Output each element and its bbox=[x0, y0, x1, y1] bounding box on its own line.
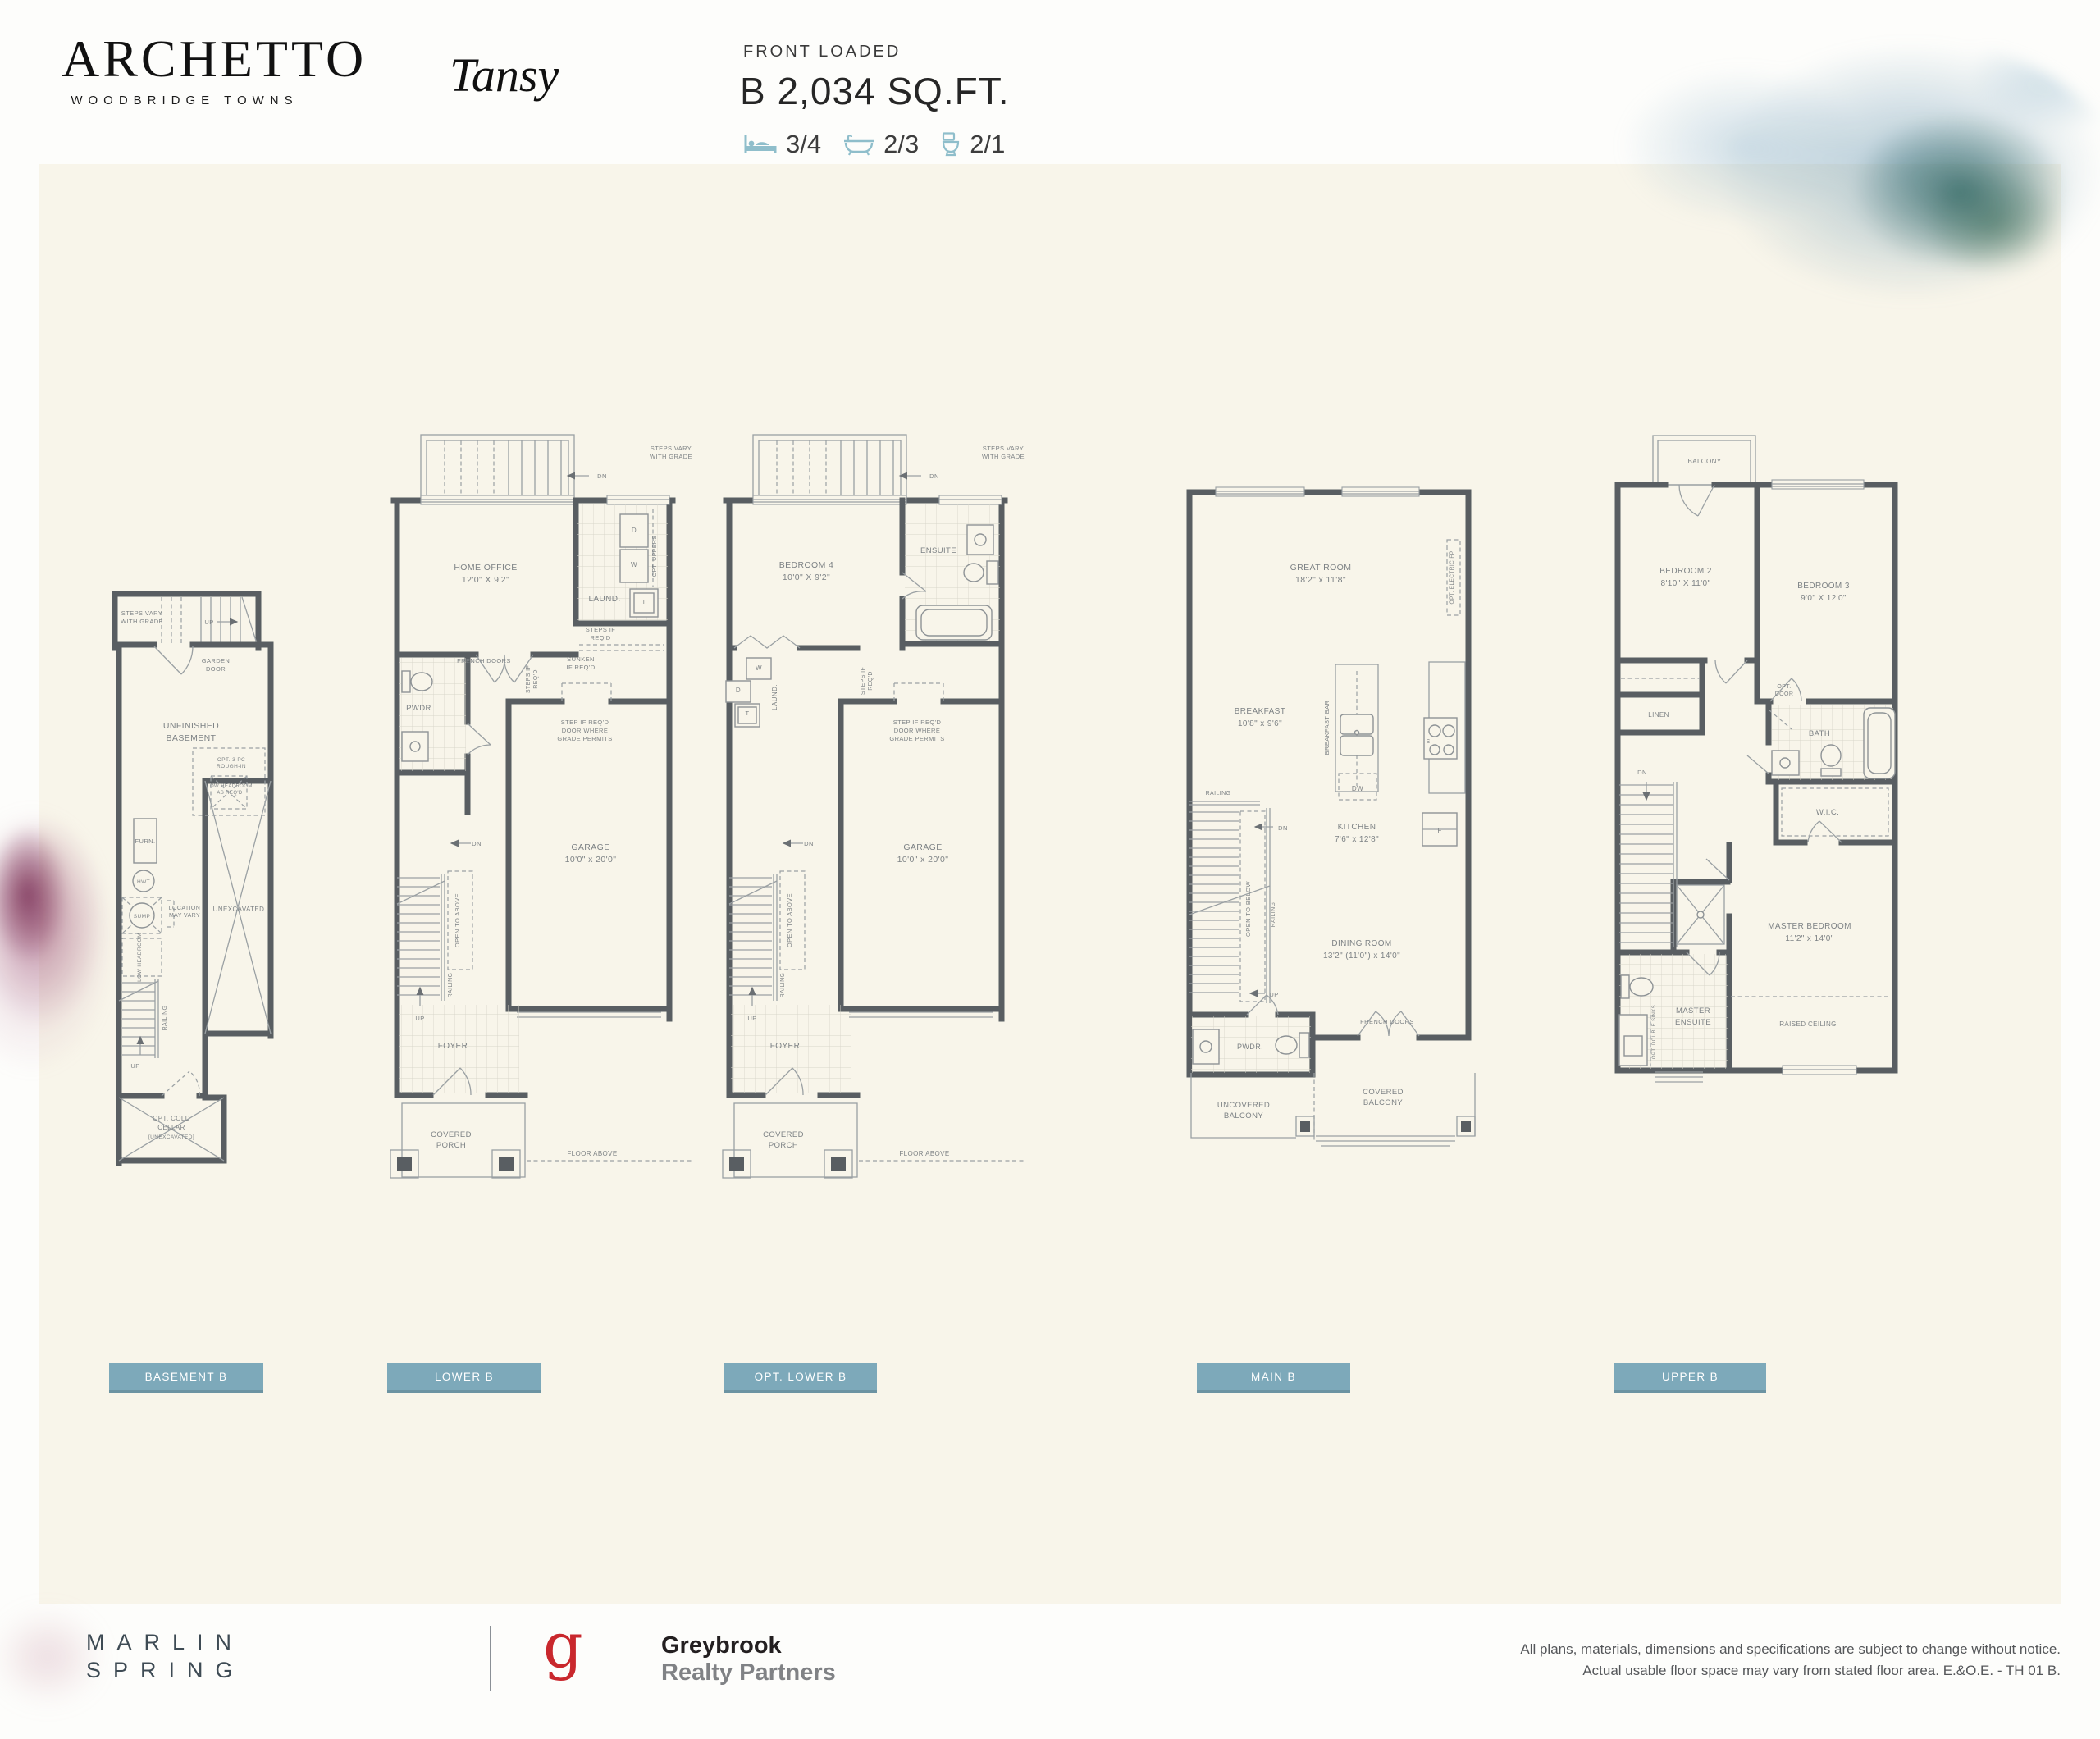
plan-label: 9'0" X 12'0" bbox=[1801, 594, 1847, 603]
plan-label: GRADE PERMITS bbox=[889, 735, 944, 742]
tab-basement-b[interactable]: BASEMENT B bbox=[109, 1363, 263, 1393]
plan-label: OPT. bbox=[1777, 684, 1791, 690]
plan-label: UNEXCAVATED bbox=[213, 906, 265, 913]
marlin-line1: MARLIN bbox=[86, 1629, 245, 1657]
plan-label: 10'0" x 20'0" bbox=[565, 855, 617, 865]
basement-stairs bbox=[119, 979, 158, 1058]
main-stairs bbox=[1189, 801, 1273, 1003]
plan-label: SUMP bbox=[134, 914, 150, 920]
plan-label: REQ'D bbox=[533, 669, 539, 689]
plan-label: D bbox=[632, 527, 637, 534]
plan-size-label: B 2,034 SQ.FT. bbox=[740, 69, 1009, 113]
plan-label: 10'0" x 20'0" bbox=[897, 855, 949, 865]
plan-label: HOME OFFICE bbox=[454, 563, 517, 573]
plan-label: D bbox=[736, 687, 741, 694]
toilet-icon bbox=[940, 132, 961, 157]
plan-label: 12'0" X 9'2" bbox=[462, 575, 509, 585]
plan-label: UNFINISHED bbox=[163, 721, 219, 731]
plan-label: W bbox=[756, 664, 762, 672]
garden-door bbox=[154, 646, 193, 674]
toilets-stat: 2/1 bbox=[940, 130, 1005, 159]
bathtubs-value: 2/3 bbox=[883, 130, 919, 159]
plan-label: BREAKFAST bbox=[1235, 707, 1286, 716]
plan-label: F bbox=[1437, 827, 1441, 834]
plan-label: DINING ROOM bbox=[1331, 939, 1391, 948]
plan-label: FURN. bbox=[135, 838, 156, 845]
plan-label: BEDROOM 2 bbox=[1659, 567, 1712, 576]
plan-label: OPT. DOUBLE SINKS bbox=[1652, 1005, 1657, 1059]
plan-label: DN bbox=[472, 840, 482, 847]
kitchen-counter bbox=[1422, 662, 1465, 846]
plan-label: RAILING bbox=[780, 973, 786, 998]
plan-label: GRADE PERMITS bbox=[557, 735, 612, 742]
plan-label: GARDEN bbox=[202, 657, 231, 664]
plan-label: WITH GRADE bbox=[650, 453, 692, 460]
plan-label: WITH GRADE bbox=[982, 453, 1025, 460]
plan-label: MASTER bbox=[1676, 1006, 1710, 1016]
upper-stairs bbox=[1619, 782, 1677, 947]
plan-label: T bbox=[642, 598, 646, 605]
plan-label: DN bbox=[804, 840, 814, 847]
plan-label: FOYER bbox=[770, 1042, 800, 1051]
plan-label: FOYER bbox=[438, 1042, 468, 1051]
plan-label: FLOOR ABOVE bbox=[567, 1150, 617, 1157]
toilets-value: 2/1 bbox=[970, 130, 1005, 159]
plan-label: BALCONY bbox=[1687, 458, 1721, 465]
plan-label: DN bbox=[929, 472, 939, 480]
plan-label: OPT. UPPERS bbox=[652, 536, 658, 577]
plan-label: ROUGH-IN bbox=[217, 764, 246, 769]
plan-label: T bbox=[746, 710, 750, 717]
plan-label: S bbox=[1426, 739, 1430, 745]
plan-label: RAISED CEILING bbox=[1779, 1020, 1837, 1028]
plan-label: STEPS IF bbox=[526, 665, 532, 693]
plan-label: STEP IF REQ'D bbox=[893, 719, 942, 726]
plan-label: LAUND. bbox=[771, 684, 778, 710]
plan-label: UP bbox=[747, 1015, 756, 1022]
bathtubs-stat: 2/3 bbox=[842, 130, 919, 159]
plan-label: UP bbox=[415, 1015, 424, 1022]
powder-room bbox=[1191, 995, 1311, 1073]
balcony-door bbox=[1679, 485, 1714, 516]
tab-upper-b[interactable]: UPPER B bbox=[1614, 1363, 1766, 1393]
plan-label: SUNKEN bbox=[567, 655, 595, 663]
ensuite-bath bbox=[902, 504, 1000, 641]
floorplan-opt-lower-b: STEPS VARYWITH GRADEDNBEDROOM 410'0" X 9… bbox=[701, 353, 1029, 1198]
brand-name: ARCHETTO bbox=[62, 33, 308, 85]
plan-label: RAILING bbox=[162, 1006, 168, 1031]
plan-label: COVERED bbox=[431, 1130, 472, 1139]
greybrook-line2: Realty Partners bbox=[661, 1659, 836, 1687]
floorplan-main-b: GREAT ROOM18'2" x 11'8"OPT. ELECTRIC FPB… bbox=[1181, 472, 1477, 1152]
plan-label: IF REQ'D bbox=[566, 664, 595, 671]
greybrook-g-icon: g bbox=[543, 1614, 583, 1677]
plan-label: LAUND. bbox=[588, 595, 620, 604]
plan-label: FLOOR ABOVE bbox=[899, 1150, 949, 1157]
plan-label: BASEMENT bbox=[167, 733, 217, 743]
plan-label: GREAT ROOM bbox=[1290, 563, 1352, 573]
plan-label: PWDR. bbox=[406, 704, 434, 713]
plan-label: DN bbox=[597, 472, 607, 480]
greybrook-logo: Greybrook Realty Partners bbox=[661, 1632, 836, 1687]
plan-label: PWDR. bbox=[1237, 1043, 1263, 1051]
marlin-line2: SPRING bbox=[86, 1657, 245, 1685]
tab-lower-b[interactable]: LOWER B bbox=[387, 1363, 541, 1393]
plan-label: STEPS IF bbox=[861, 667, 866, 695]
plan-label: STEPS VARY bbox=[121, 609, 162, 617]
plan-label: BALCONY bbox=[1224, 1111, 1263, 1121]
plan-label: 10'0" X 9'2" bbox=[783, 573, 830, 582]
master-ensuite bbox=[1619, 952, 1728, 1082]
bed-icon bbox=[743, 134, 778, 155]
plan-label: STEPS IF bbox=[586, 626, 616, 633]
garage-area bbox=[849, 683, 1025, 1161]
bedroom4-closet bbox=[734, 636, 800, 648]
tab-main-b[interactable]: MAIN B bbox=[1197, 1363, 1350, 1393]
plan-label: DN bbox=[1637, 769, 1647, 776]
plan-label: GARAGE bbox=[571, 842, 609, 852]
plan-label: [UNEXCAVATED] bbox=[148, 1134, 194, 1140]
garage-area bbox=[517, 683, 692, 1161]
plan-label: BREAKFAST BAR bbox=[1323, 700, 1331, 755]
plan-label: RAILING bbox=[1271, 902, 1276, 928]
floorplan-basement-b: STEPS VARYWITH GRADEUPGARDENDOORUNFINISH… bbox=[70, 459, 275, 1181]
plan-label: REQ'D bbox=[590, 634, 610, 641]
plan-label: MASTER BEDROOM bbox=[1768, 922, 1851, 931]
floorplan-upper-b: BALCONYBEDROOM 28'10" X 11'0"BEDROOM 39'… bbox=[1608, 431, 1903, 1095]
plan-label: BALCONY bbox=[1363, 1098, 1403, 1107]
disclaimer: All plans, materials, dimensions and spe… bbox=[1437, 1639, 2061, 1682]
plan-label: PORCH bbox=[769, 1141, 798, 1150]
footer-divider bbox=[490, 1626, 491, 1691]
plan-label: GARAGE bbox=[903, 842, 942, 852]
disclaimer-line1: All plans, materials, dimensions and spe… bbox=[1437, 1639, 2061, 1660]
plan-label: CELLAR bbox=[157, 1124, 185, 1131]
plan-label: MAY VARY bbox=[169, 913, 200, 919]
plan-label: STEP IF REQ'D bbox=[561, 719, 609, 726]
plan-label: WITH GRADE bbox=[121, 618, 163, 625]
plan-label: DOOR bbox=[1775, 691, 1794, 697]
plan-label: COVERED bbox=[763, 1130, 804, 1139]
plan-label: 18'2" x 11'8" bbox=[1295, 575, 1346, 585]
plan-label: LOCATION bbox=[169, 906, 200, 911]
plan-label: OPEN TO BELOW bbox=[1244, 881, 1252, 937]
plan-label: REQ'D bbox=[868, 671, 874, 691]
plan-label: W.I.C. bbox=[1816, 808, 1839, 817]
plan-label: UP bbox=[1269, 991, 1278, 998]
brand-logo: ARCHETTO WOODBRIDGE TOWNS bbox=[62, 33, 308, 107]
plan-label: OPEN TO ABOVE bbox=[454, 893, 461, 947]
plan-label: 10'8" x 9'6" bbox=[1238, 719, 1282, 728]
plan-label: STEPS VARY bbox=[983, 445, 1024, 452]
lower-stairs bbox=[397, 843, 472, 1006]
plan-label: DN bbox=[1278, 824, 1288, 832]
plan-label: PORCH bbox=[436, 1141, 466, 1150]
plan-label: BATH bbox=[1809, 729, 1830, 738]
plan-label: OPT. ELECTRIC FP bbox=[1449, 551, 1455, 605]
plan-label: AS REQ'D bbox=[217, 791, 243, 796]
model-name: Tansy bbox=[450, 48, 559, 103]
plan-label: LOW HEADROOM bbox=[207, 784, 252, 789]
plan-label: UP bbox=[130, 1062, 139, 1070]
plan-label: BEDROOM 3 bbox=[1797, 582, 1850, 591]
plan-label: STEPS VARY bbox=[651, 445, 692, 452]
plan-label: BEDROOM 4 bbox=[779, 560, 834, 570]
plan-label: COVERED bbox=[1363, 1088, 1404, 1097]
plan-label: OPT. 3 PC bbox=[217, 757, 245, 763]
bath-icon bbox=[842, 133, 875, 156]
plan-label: DOOR bbox=[206, 665, 226, 673]
loading-type-label: FRONT LOADED bbox=[743, 43, 901, 62]
plan-label: LOW HEADROOM bbox=[137, 933, 143, 982]
entry-steps bbox=[421, 435, 589, 498]
plan-label: OPEN TO ABOVE bbox=[786, 893, 793, 947]
plan-label: OPT. COLD bbox=[153, 1115, 190, 1122]
marlin-spring-logo: MARLIN SPRING bbox=[86, 1629, 245, 1685]
bedrooms-value: 3/4 bbox=[786, 130, 821, 159]
plan-label: UP bbox=[204, 618, 213, 626]
kitchen-island bbox=[1335, 664, 1378, 800]
unit-stats: 3/4 2/3 2/1 bbox=[743, 130, 1005, 159]
plan-label: HWT bbox=[137, 879, 150, 885]
floorplan-lower-b: STEPS VARYWITH GRADEDNHOME OFFICE12'0" X… bbox=[369, 353, 697, 1198]
plan-label: ENSUITE bbox=[920, 546, 956, 555]
brand-tagline: WOODBRIDGE TOWNS bbox=[62, 94, 308, 107]
powder-room bbox=[399, 658, 491, 771]
plan-label: DOOR WHERE bbox=[562, 727, 609, 734]
plan-label: FRENCH DOORS bbox=[457, 657, 511, 664]
plan-label: ENSUITE bbox=[1675, 1018, 1711, 1027]
greybrook-line1: Greybrook bbox=[661, 1632, 836, 1659]
plan-label: DW bbox=[1352, 785, 1363, 792]
plan-label: RAILING bbox=[448, 973, 454, 998]
plan-label: 8'10" X 11'0" bbox=[1661, 579, 1711, 588]
opt-lower-stairs bbox=[729, 843, 805, 1006]
plan-label: FRENCH DOORS bbox=[1360, 1018, 1414, 1025]
plan-label: RAILING bbox=[1206, 791, 1231, 796]
disclaimer-line2: Actual usable floor space may vary from … bbox=[1437, 1660, 2061, 1682]
plan-label: LINEN bbox=[1648, 711, 1669, 719]
plan-label: 13'2" (11'0") x 14'0" bbox=[1323, 952, 1400, 961]
bedrooms-stat: 3/4 bbox=[743, 130, 821, 159]
entry-steps bbox=[753, 435, 921, 498]
tab-opt-lower-b[interactable]: OPT. LOWER B bbox=[724, 1363, 877, 1393]
shower-fixture bbox=[1677, 885, 1724, 944]
plan-label: KITCHEN bbox=[1338, 823, 1376, 832]
plan-label: 11'2" x 14'0" bbox=[1785, 934, 1833, 943]
plan-label: UNCOVERED bbox=[1217, 1101, 1270, 1110]
plan-label: 7'6" x 12'8" bbox=[1335, 835, 1379, 844]
plan-label: DOOR WHERE bbox=[894, 727, 941, 734]
plan-label: W bbox=[631, 561, 637, 568]
